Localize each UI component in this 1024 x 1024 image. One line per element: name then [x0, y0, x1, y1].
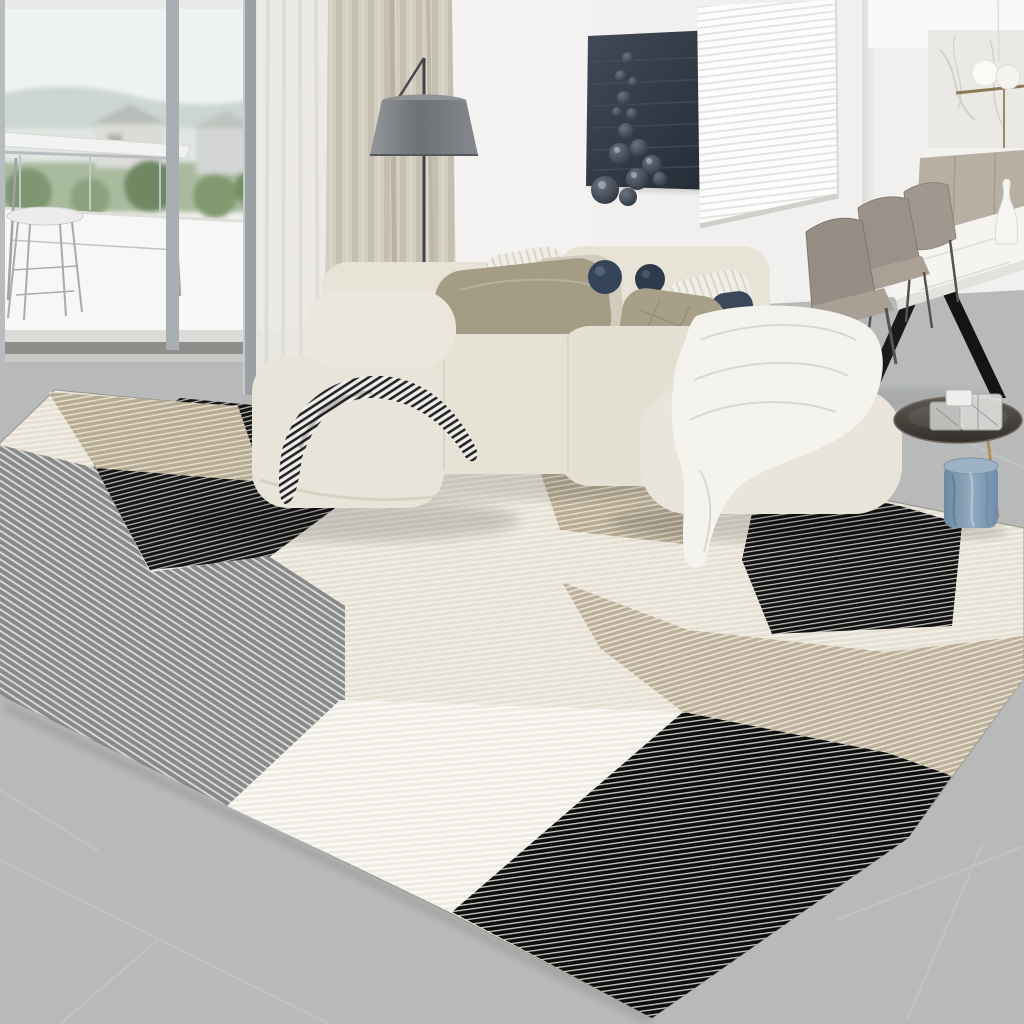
living-room-photo	[0, 0, 1024, 1024]
window-top-frame	[0, 0, 258, 9]
window-left-frame	[0, 0, 5, 362]
blue-vase	[944, 458, 998, 528]
lamp-shade	[370, 100, 478, 155]
tree	[193, 174, 237, 218]
blinds-window	[697, 0, 838, 228]
scene-canvas	[0, 0, 1024, 1024]
window-mullion	[166, 0, 179, 350]
venetian-blinds	[697, 0, 838, 228]
sofa-chaise-arm	[304, 290, 456, 368]
balcony-view	[0, 0, 270, 218]
threshold	[0, 342, 258, 354]
crystal-top	[946, 390, 972, 406]
sphere-highlight	[595, 266, 605, 276]
balcony-window	[0, 0, 270, 395]
sill-strip	[0, 354, 258, 362]
sphere-highlight	[642, 270, 650, 278]
parapet-wall	[0, 208, 258, 332]
pendant-globe	[996, 65, 1020, 89]
pendant-globe	[972, 60, 998, 86]
balcony-floor	[0, 330, 258, 342]
pillow-navy-sphere	[588, 260, 622, 294]
blue-vase-top	[944, 458, 998, 474]
